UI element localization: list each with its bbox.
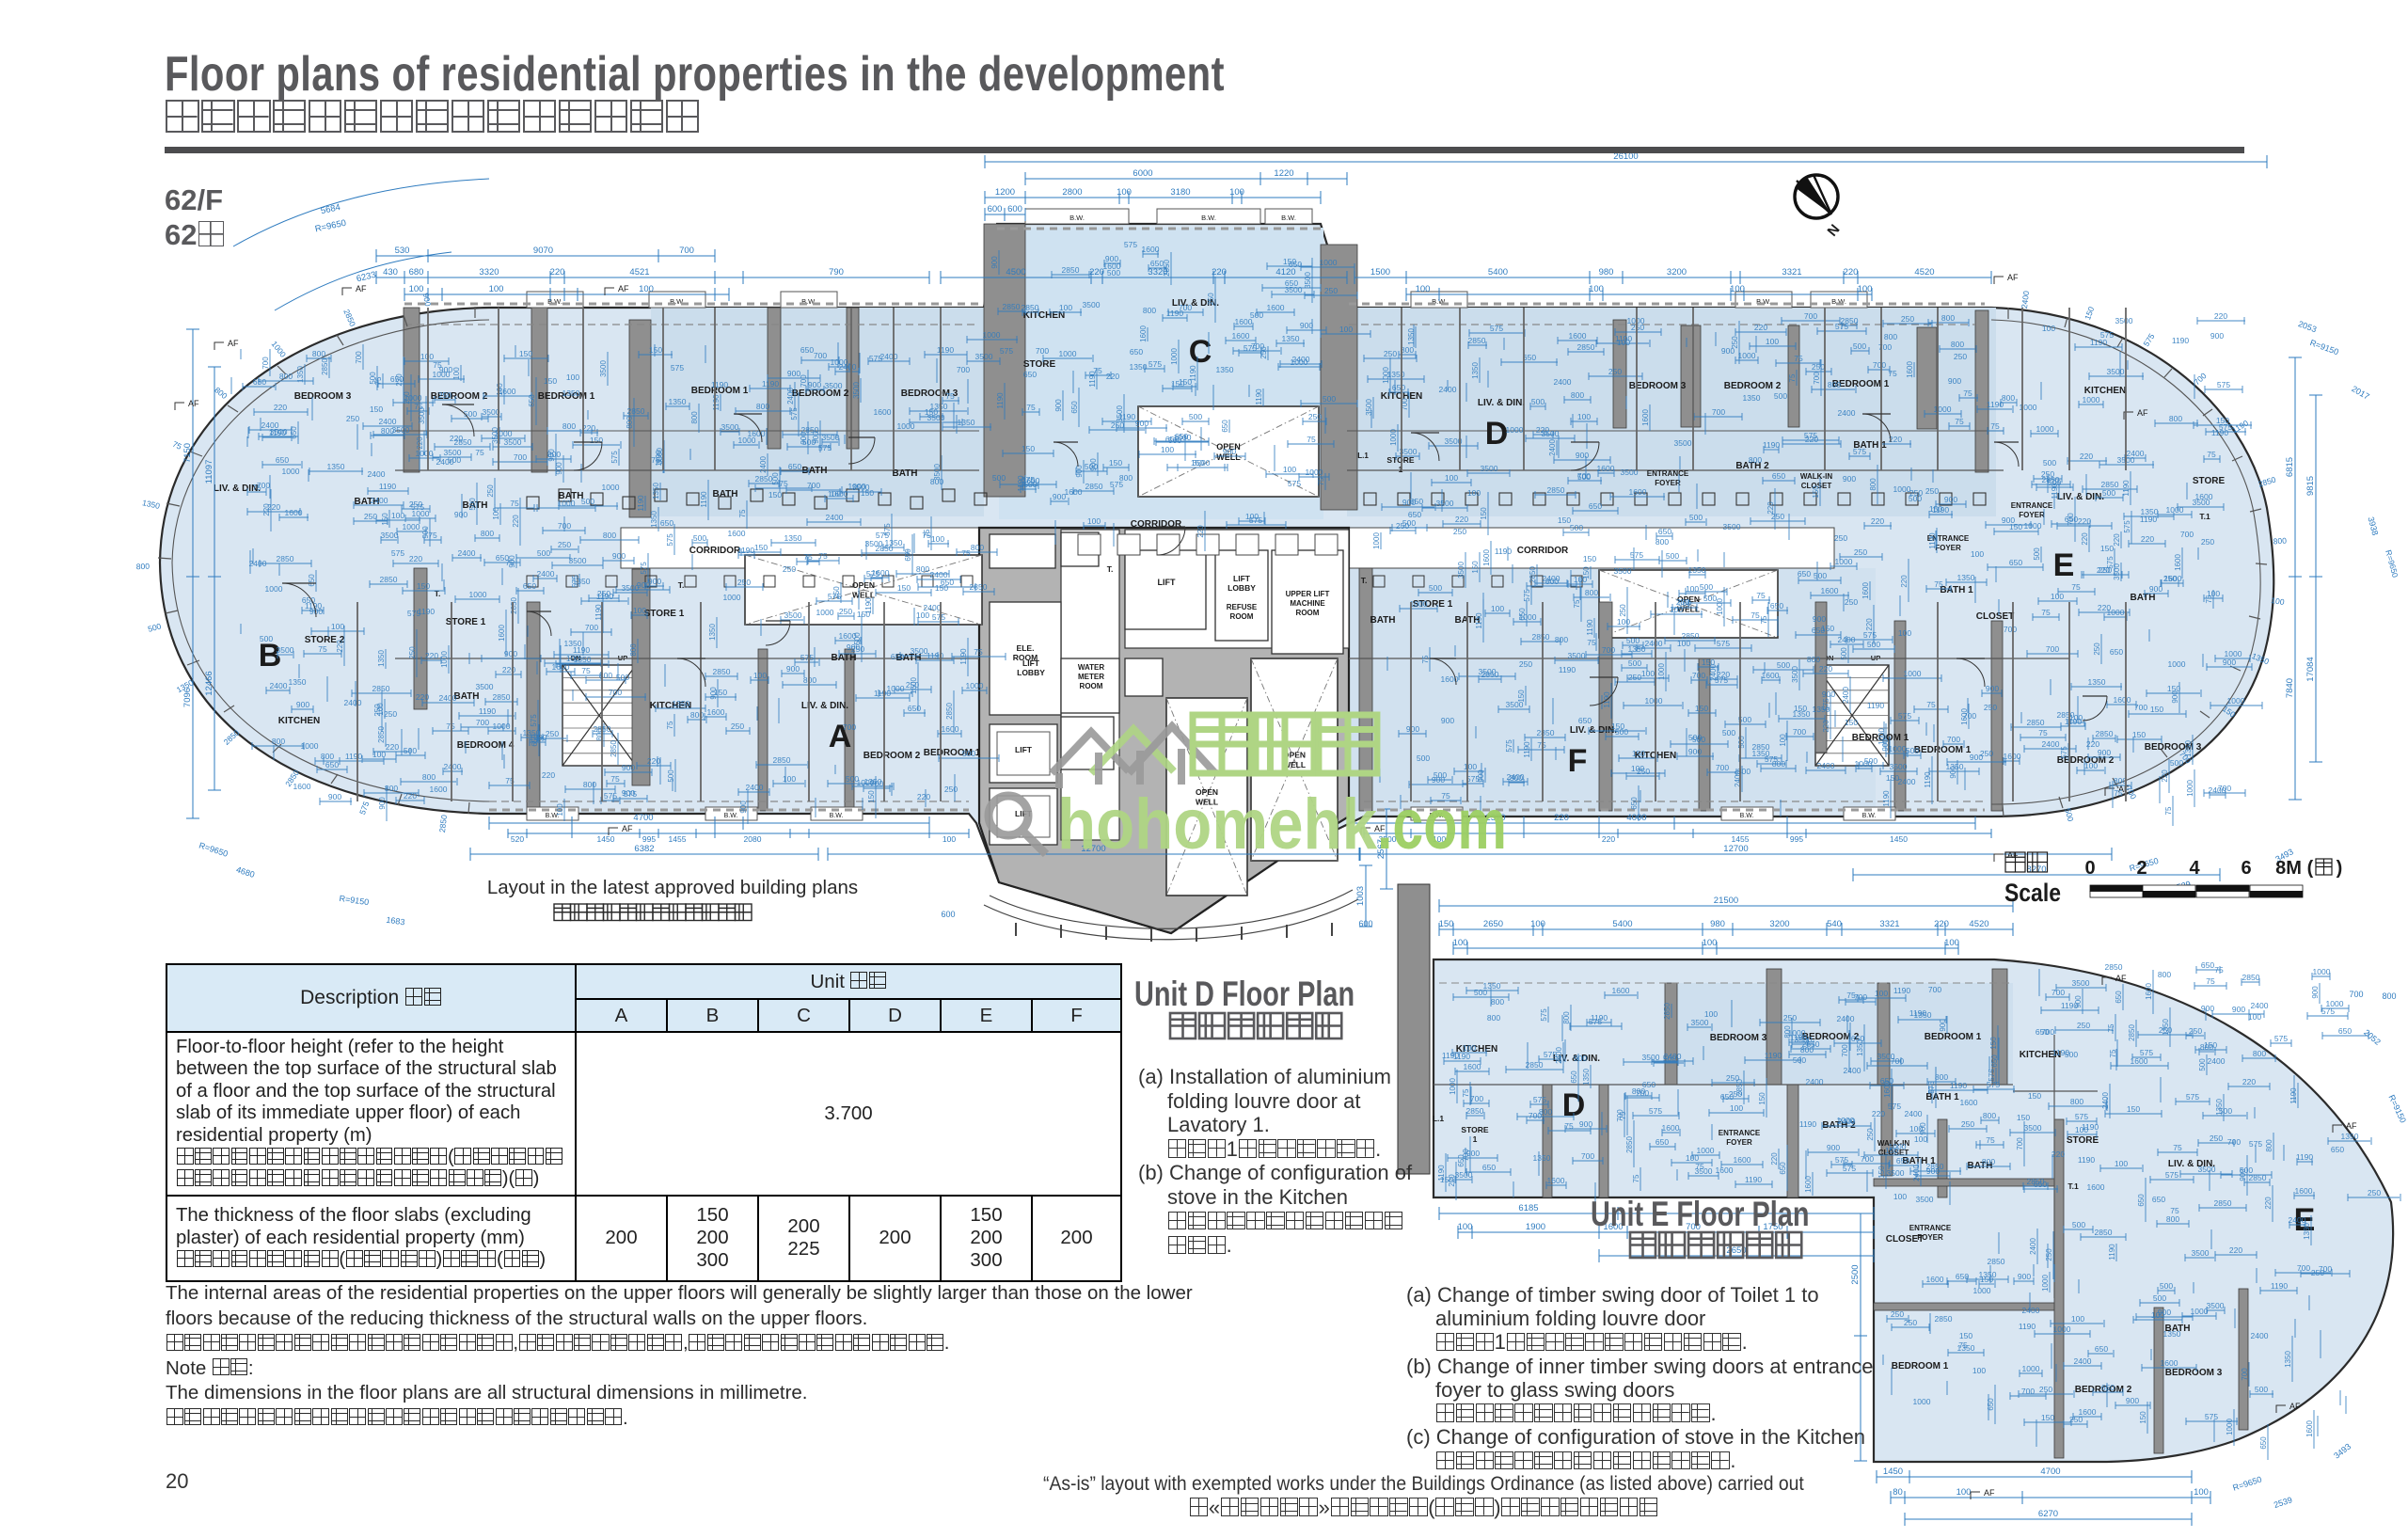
svg-text:575: 575 [2123,520,2131,533]
svg-text:150: 150 [2100,544,2114,553]
svg-text:220: 220 [502,665,515,674]
svg-text:100: 100 [1858,284,1873,294]
svg-text:2400: 2400 [759,456,768,473]
svg-text:75: 75 [1462,1088,1470,1097]
svg-text:75: 75 [2038,728,2048,737]
svg-text:540: 540 [1827,919,1842,929]
svg-text:220: 220 [582,423,595,433]
svg-text:1000: 1000 [887,684,905,693]
svg-text:100: 100 [1898,628,1911,638]
svg-text:2400: 2400 [1507,772,1525,782]
svg-text:75: 75 [2207,450,2216,459]
svg-text:3180: 3180 [1170,187,1190,198]
svg-text:900: 900 [1949,766,1957,779]
svg-text:500: 500 [1688,733,1702,742]
svg-text:220: 220 [425,651,438,660]
svg-text:4700: 4700 [633,813,653,823]
svg-text:700: 700 [1529,1111,1542,1120]
svg-text:3500: 3500 [1568,651,1586,660]
svg-text:500: 500 [1628,658,1641,668]
svg-text:100: 100 [783,774,796,784]
svg-text:650: 650 [1285,278,1298,288]
svg-text:hohomehk: hohomehk [1057,785,1378,864]
svg-text:250: 250 [1608,367,1622,376]
svg-text:800: 800 [2169,414,2182,423]
svg-text:700: 700 [2052,988,2065,997]
svg-text:1000: 1000 [1291,357,1308,367]
svg-text:1600: 1600 [2114,695,2131,705]
svg-text:900: 900 [1970,753,1983,762]
svg-text:250: 250 [2163,574,2177,583]
svg-text:11097: 11097 [204,460,214,484]
svg-text:1350: 1350 [377,650,386,667]
svg-text:CORRIDOR: CORRIDOR [689,546,741,556]
svg-text:B.W.: B.W. [830,813,844,819]
svg-text:800: 800 [2166,1214,2179,1224]
svg-text:650: 650 [1896,1156,1909,1165]
svg-text:500: 500 [1666,551,1679,561]
svg-text:220: 220 [512,515,520,528]
svg-text:1350: 1350 [1793,709,1811,719]
svg-text:150: 150 [381,513,389,526]
svg-text:3500: 3500 [1457,562,1465,579]
svg-text:1600: 1600 [910,677,918,694]
svg-text:1190: 1190 [2078,1155,2096,1165]
svg-text:100: 100 [2115,1159,2128,1168]
svg-text:150: 150 [1821,624,1834,633]
svg-text:AF: AF [2115,974,2127,983]
svg-text:500: 500 [147,621,163,633]
svg-text:3500: 3500 [1642,1053,1660,1062]
svg-text:3500: 3500 [2192,1248,2210,1258]
svg-text:800: 800 [803,675,816,685]
svg-text:3500: 3500 [1455,1170,1473,1180]
svg-text:2850: 2850 [627,406,645,416]
svg-text:5684: 5684 [320,202,341,216]
svg-text:800: 800 [1737,767,1751,776]
svg-text:1000: 1000 [270,340,289,359]
svg-text:2850: 2850 [2214,1198,2232,1208]
svg-text:250: 250 [737,578,751,587]
svg-text:220: 220 [1770,1152,1779,1165]
svg-text:4000: 4000 [1626,813,1646,823]
svg-text:2400: 2400 [2208,1056,2226,1066]
svg-text:1350: 1350 [1914,1010,1932,1020]
svg-text:800: 800 [599,671,612,680]
svg-text:1000: 1000 [493,721,511,731]
svg-text:650: 650 [788,462,801,471]
svg-text:1190: 1190 [1495,547,1513,556]
svg-text:250: 250 [373,704,382,717]
svg-text:1350: 1350 [2284,1351,2292,1368]
svg-text:2400: 2400 [537,569,555,579]
svg-text:100: 100 [331,622,344,631]
svg-text:800: 800 [312,349,325,358]
svg-text:250: 250 [1628,673,1641,682]
svg-text:700: 700 [1036,346,1049,356]
svg-text:650: 650 [1770,601,1783,610]
svg-text:75: 75 [252,483,261,492]
svg-text:75: 75 [1788,373,1797,382]
svg-text:1190: 1190 [937,345,955,355]
svg-text:500: 500 [2219,1106,2232,1116]
svg-text:575: 575 [2140,1048,2153,1057]
svg-text:500: 500 [846,774,859,784]
svg-text:900: 900 [421,526,430,539]
svg-text:700: 700 [1462,1149,1470,1162]
svg-text:ROOM: ROOM [1230,612,1254,621]
svg-text:575: 575 [2217,380,2230,389]
svg-text:B.W.: B.W. [1069,214,1085,222]
svg-text:700: 700 [807,481,820,490]
svg-text:800: 800 [756,402,769,411]
svg-text:2850: 2850 [755,474,773,484]
svg-text:2850: 2850 [493,692,511,702]
svg-text:1190: 1190 [1763,440,1781,450]
svg-text:75: 75 [974,647,983,657]
svg-text:500: 500 [1909,494,1922,503]
svg-text:1600: 1600 [498,625,506,642]
svg-text:650: 650 [2137,1194,2146,1207]
svg-text:700: 700 [1841,1044,1849,1057]
svg-text:1000: 1000 [1835,557,1853,566]
svg-text:1600: 1600 [728,529,746,538]
svg-text:575: 575 [1124,240,1137,249]
svg-text:100: 100 [1589,284,1604,294]
svg-text:650: 650 [276,455,289,465]
svg-text:700: 700 [2349,990,2363,999]
svg-text:575: 575 [1804,431,1817,440]
svg-text:METER: METER [1078,673,1104,681]
svg-text:430: 430 [383,267,398,277]
svg-text:2850: 2850 [1466,1106,1484,1116]
svg-text:100: 100 [1730,284,1745,294]
svg-text:500: 500 [2043,458,2056,468]
svg-text:700: 700 [1712,407,1725,417]
svg-text:2400: 2400 [1645,639,1663,648]
svg-text:1350: 1350 [2163,1329,2181,1339]
svg-text:575: 575 [1540,1008,1548,1022]
svg-text:250: 250 [783,564,796,574]
svg-text:500: 500 [1737,736,1746,749]
svg-text:700: 700 [261,357,270,370]
svg-text:2850: 2850 [2096,729,2114,738]
svg-text:1350: 1350 [1582,1069,1591,1086]
svg-text:150: 150 [1980,1275,1993,1284]
svg-text:150: 150 [2139,1411,2147,1424]
svg-text:1350: 1350 [2088,677,2106,687]
svg-text:1190: 1190 [2108,1244,2116,1261]
svg-text:100: 100 [1467,488,1481,498]
svg-text:220: 220 [2086,739,2099,749]
svg-text:2053: 2053 [2297,319,2318,334]
svg-text:1350: 1350 [673,699,690,708]
svg-text:150: 150 [754,543,768,552]
svg-text:650: 650 [2259,1436,2268,1450]
svg-text:500: 500 [1777,660,1790,670]
svg-text:575: 575 [671,363,684,373]
svg-text:500: 500 [2240,1165,2253,1175]
svg-text:1190: 1190 [712,394,721,411]
svg-text:1000: 1000 [1372,532,1381,549]
svg-text:7840: 7840 [2285,678,2295,698]
svg-text:650: 650 [523,581,536,591]
svg-text:700: 700 [843,722,856,732]
svg-text:900: 900 [812,431,820,444]
svg-text:700: 700 [2021,1387,2035,1396]
svg-text:1000: 1000 [1657,663,1666,680]
svg-text:800: 800 [422,772,436,782]
svg-text:650: 650 [1655,1137,1669,1147]
svg-text:2850: 2850 [2128,1024,2136,1041]
svg-text:1000: 1000 [1855,759,1873,769]
svg-text:3500: 3500 [1365,399,1373,416]
svg-text:150: 150 [2204,1040,2217,1050]
svg-text:100: 100 [1956,1487,1972,1498]
svg-text:575: 575 [530,714,538,727]
svg-text:3500: 3500 [852,382,861,399]
svg-text:100: 100 [1641,669,1655,678]
svg-text:900: 900 [1223,447,1236,456]
svg-text:6185: 6185 [1518,1203,1538,1213]
svg-text:575: 575 [1544,1050,1557,1059]
svg-text:LIFT: LIFT [1158,578,1176,587]
svg-text:75: 75 [2071,582,2081,592]
svg-text:1000: 1000 [416,449,434,458]
svg-text:1190: 1190 [711,380,729,389]
svg-text:6000: 6000 [1133,168,1152,179]
svg-text:75: 75 [1093,366,1102,375]
svg-text:575: 575 [2075,1112,2088,1121]
svg-text:1600: 1600 [1464,1062,1481,1071]
svg-text:150: 150 [1179,377,1192,387]
svg-text:220: 220 [1865,618,1874,631]
svg-text:900: 900 [454,510,467,519]
svg-text:1600: 1600 [1716,1165,1734,1175]
svg-text:Layout in the latest approved: Layout in the latest approved building p… [487,877,858,898]
svg-text:800: 800 [1982,1157,1995,1166]
svg-text:250: 250 [1207,293,1215,306]
svg-text:3500: 3500 [483,407,500,417]
svg-text:2850: 2850 [277,554,294,563]
svg-text:1000: 1000 [2227,696,2245,706]
svg-text:1350: 1350 [1471,362,1480,379]
svg-text:3500: 3500 [2107,367,2125,376]
svg-text:900: 900 [2018,1272,2031,1281]
svg-text:250: 250 [851,644,864,654]
svg-text:2850: 2850 [1022,303,1039,312]
svg-text:575: 575 [1835,1155,1848,1165]
svg-text:650: 650 [325,760,339,769]
svg-text:100: 100 [2084,761,2098,770]
svg-text:575: 575 [790,407,799,420]
svg-text:MACHINE: MACHINE [1290,599,1325,608]
svg-text:220: 220 [2242,1077,2256,1086]
svg-text:650: 650 [1392,383,1405,392]
svg-text:2850: 2850 [380,575,398,584]
svg-text:1190: 1190 [479,706,497,716]
svg-text:700: 700 [1793,727,1806,737]
svg-text:500: 500 [1867,640,1880,649]
svg-text:1190: 1190 [2065,717,2083,726]
svg-text:900: 900 [2232,1005,2245,1014]
svg-text:AF: AF [2137,408,2148,418]
svg-text:220: 220 [2078,516,2091,526]
svg-text:900: 900 [2126,1396,2139,1405]
svg-text:BEDROOM 3: BEDROOM 3 [2145,742,2202,753]
svg-text:3500: 3500 [2072,978,2090,988]
svg-text:1350: 1350 [1957,573,1975,582]
svg-text:250: 250 [731,721,744,731]
svg-text:2850: 2850 [2095,1228,2113,1237]
svg-text:150: 150 [714,688,727,697]
svg-text:2400: 2400 [1898,777,1916,786]
svg-text:1000: 1000 [1877,728,1886,745]
svg-text:250: 250 [2368,1188,2381,1197]
svg-text:575: 575 [1523,589,1531,602]
svg-text:220: 220 [917,792,930,801]
svg-text:500: 500 [1906,746,1919,755]
svg-text:6270: 6270 [2038,1509,2058,1519]
svg-text:1350: 1350 [652,483,660,499]
svg-text:150: 150 [2132,730,2146,739]
svg-text:2850: 2850 [1468,336,1486,345]
svg-text:BEDROOM 1: BEDROOM 1 [1914,745,1972,755]
svg-text:T.: T. [678,580,685,590]
svg-text:1600: 1600 [1762,671,1780,680]
svg-text:1600: 1600 [942,724,959,734]
svg-text:100: 100 [1458,1222,1473,1232]
svg-text:900: 900 [990,256,999,269]
svg-text:R=9650: R=9650 [2384,548,2400,579]
svg-text:220: 220 [336,640,344,653]
svg-text:2850: 2850 [2027,718,2045,727]
svg-text:500: 500 [2048,478,2061,487]
svg-text:800: 800 [930,477,943,486]
svg-text:100: 100 [1972,1366,1986,1375]
svg-text:250: 250 [546,729,559,738]
svg-text:250: 250 [2159,1025,2172,1035]
svg-text:650: 650 [2338,1026,2352,1036]
svg-text:900: 900 [1944,495,1957,504]
svg-text:575: 575 [1249,515,1262,525]
svg-text:900: 900 [1948,376,1961,386]
svg-text:9815: 9815 [2305,476,2316,496]
svg-text:1350: 1350 [1282,334,1300,343]
svg-text:250: 250 [1866,1128,1875,1141]
svg-text:900: 900 [328,792,341,801]
svg-text:): ) [2337,858,2343,879]
svg-text:500: 500 [369,372,377,385]
svg-text:500: 500 [1189,412,1202,421]
svg-text:900: 900 [1688,747,1702,756]
svg-text:2850: 2850 [2242,973,2260,982]
svg-text:1600: 1600 [2087,1182,2105,1192]
svg-text:100: 100 [2151,1310,2164,1320]
svg-text:700: 700 [1616,1109,1624,1122]
svg-text:STORE: STORE [2067,1135,2099,1146]
svg-text:75: 75 [1632,1174,1640,1182]
svg-text:220: 220 [1822,720,1830,733]
svg-text:2850: 2850 [970,582,988,592]
svg-text:75: 75 [1963,388,1972,398]
svg-text:3500: 3500 [784,610,802,620]
svg-text:100: 100 [1574,575,1587,584]
svg-text:1350: 1350 [562,388,580,398]
svg-text:12700: 12700 [1723,844,1748,854]
svg-text:B.W.: B.W. [1740,813,1754,819]
svg-text:800: 800 [1585,588,1598,597]
svg-text:80: 80 [1893,1487,1903,1498]
svg-text:1190: 1190 [762,379,780,388]
svg-text:500: 500 [1429,583,1442,593]
svg-text:1000: 1000 [1506,425,1524,435]
svg-text:1190: 1190 [1932,505,1950,515]
svg-text:220: 220 [542,770,555,780]
svg-text:500: 500 [2072,1220,2085,1229]
svg-text:800: 800 [136,562,150,571]
svg-text:1350: 1350 [1856,1039,1864,1056]
svg-text:BATH 1: BATH 1 [1940,585,1973,595]
svg-text:650: 650 [1578,716,1592,725]
svg-text:650: 650 [2152,1195,2165,1204]
svg-text:900: 900 [439,365,452,374]
svg-text:100: 100 [1453,938,1468,948]
svg-text:1190: 1190 [2019,1322,2036,1331]
svg-text:LIV. & DIN.: LIV. & DIN. [2057,492,2104,502]
svg-text:500: 500 [260,634,273,643]
svg-text:75: 75 [610,774,620,784]
svg-text:995: 995 [1790,834,1803,844]
svg-text:75: 75 [2114,788,2123,798]
svg-text:700: 700 [1928,985,1941,994]
svg-text:3500: 3500 [1916,1195,1934,1204]
svg-text:150: 150 [649,345,662,355]
svg-text:250: 250 [364,512,377,521]
svg-text:2400: 2400 [930,570,948,579]
svg-text:1600: 1600 [1547,1176,1565,1185]
svg-text:1000: 1000 [412,509,430,518]
svg-text:575: 575 [571,575,579,588]
svg-text:75: 75 [1955,417,1964,426]
svg-text:1190: 1190 [996,392,1005,409]
svg-text:1000: 1000 [1449,1078,1457,1095]
svg-text:900: 900 [808,380,821,389]
svg-text:1350: 1350 [1813,705,1830,714]
svg-text:1190: 1190 [1453,1052,1471,1061]
svg-text:2400: 2400 [2029,1238,2037,1255]
svg-text:900: 900 [622,763,635,772]
svg-text:500: 500 [1814,571,1827,580]
svg-text:575: 575 [1110,480,1123,489]
svg-text:3500: 3500 [392,425,410,435]
svg-text:500: 500 [1722,728,1735,737]
svg-text:BATH: BATH [892,468,917,479]
svg-text:2850: 2850 [2257,475,2277,489]
svg-text:220: 220 [2081,532,2089,546]
svg-text:2400: 2400 [458,548,476,558]
svg-text:1350: 1350 [289,677,307,687]
svg-text:75: 75 [1990,421,2000,431]
svg-text:1350: 1350 [1688,565,1706,575]
svg-text:150: 150 [1109,458,1122,468]
svg-text:1000: 1000 [2024,521,2042,531]
svg-text:CORRIDOR: CORRIDOR [1517,546,1569,556]
svg-text:900: 900 [622,788,635,798]
svg-text:800: 800 [690,411,699,424]
svg-text:6: 6 [2241,858,2251,879]
svg-text:LIV. & DIN.: LIV. & DIN. [1478,398,1525,408]
